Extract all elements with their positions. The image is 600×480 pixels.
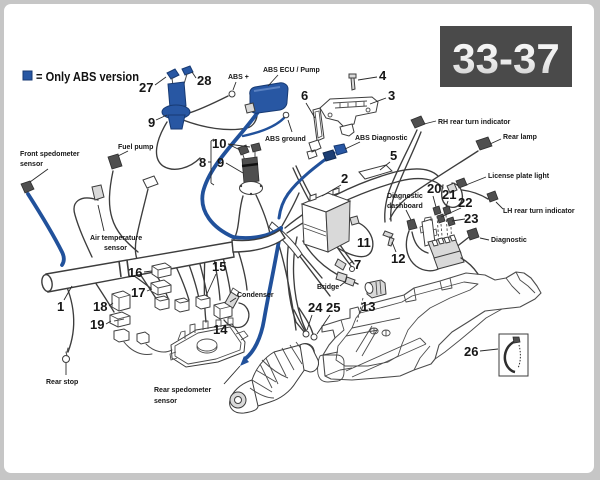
svg-text:= Only ABS version: = Only ABS version — [36, 70, 139, 84]
svg-text:Fuel pump: Fuel pump — [118, 144, 153, 151]
svg-text:Rear stop: Rear stop — [46, 379, 78, 386]
svg-text:Rear lamp: Rear lamp — [503, 134, 537, 141]
svg-text:Air temperature: Air temperature — [90, 235, 142, 242]
svg-text:dashboard: dashboard — [387, 203, 423, 210]
svg-text:20: 20 — [427, 181, 441, 196]
svg-text:18: 18 — [93, 299, 107, 314]
svg-text:Diagnostic: Diagnostic — [387, 193, 423, 200]
svg-text:Front spedometer: Front spedometer — [20, 151, 80, 158]
svg-text:8: 8 — [199, 155, 206, 170]
svg-text:25: 25 — [326, 300, 340, 315]
svg-text:9: 9 — [148, 115, 155, 130]
svg-text:13: 13 — [361, 299, 375, 314]
svg-text:23: 23 — [464, 211, 478, 226]
svg-text:Condenser: Condenser — [237, 292, 274, 299]
svg-text:24: 24 — [308, 300, 323, 315]
svg-text:ABS +: ABS + — [228, 74, 249, 81]
svg-text:21: 21 — [442, 187, 456, 202]
svg-text:RH rear turn indicator: RH rear turn indicator — [438, 119, 511, 126]
svg-text:ABS ECU / Pump: ABS ECU / Pump — [263, 67, 320, 74]
svg-text:LH rear turn indicator: LH rear turn indicator — [503, 208, 575, 215]
svg-text:17: 17 — [131, 285, 145, 300]
svg-text:ABS Diagnostic: ABS Diagnostic — [355, 135, 408, 142]
svg-text:License plate light: License plate light — [488, 173, 550, 180]
svg-text:2: 2 — [341, 171, 348, 186]
svg-text:15: 15 — [212, 259, 226, 274]
svg-text:10: 10 — [212, 136, 226, 151]
svg-text:ABS ground: ABS ground — [265, 136, 306, 143]
svg-text:33-37: 33-37 — [452, 35, 559, 82]
svg-text:4: 4 — [379, 68, 387, 83]
svg-text:22: 22 — [458, 195, 472, 210]
svg-text:6: 6 — [301, 88, 308, 103]
svg-text:14: 14 — [213, 322, 228, 337]
svg-text:Diagnostic: Diagnostic — [491, 237, 527, 244]
svg-text:5: 5 — [390, 148, 397, 163]
svg-text:sensor: sensor — [104, 245, 127, 252]
svg-text:11: 11 — [357, 235, 371, 250]
svg-text:sensor: sensor — [20, 161, 43, 168]
svg-text:3: 3 — [388, 88, 395, 103]
svg-text:7: 7 — [354, 257, 361, 272]
svg-text:Bridge: Bridge — [317, 284, 339, 291]
svg-text:9: 9 — [217, 155, 224, 170]
svg-text:Rear spedometer: Rear spedometer — [154, 387, 211, 394]
svg-text:1: 1 — [57, 299, 64, 314]
svg-text:27: 27 — [139, 80, 153, 95]
svg-text:26: 26 — [464, 344, 478, 359]
svg-text:19: 19 — [90, 317, 104, 332]
svg-text:12: 12 — [391, 251, 405, 266]
svg-text:16: 16 — [128, 265, 142, 280]
svg-text:28: 28 — [197, 73, 211, 88]
svg-text:sensor: sensor — [154, 398, 177, 405]
